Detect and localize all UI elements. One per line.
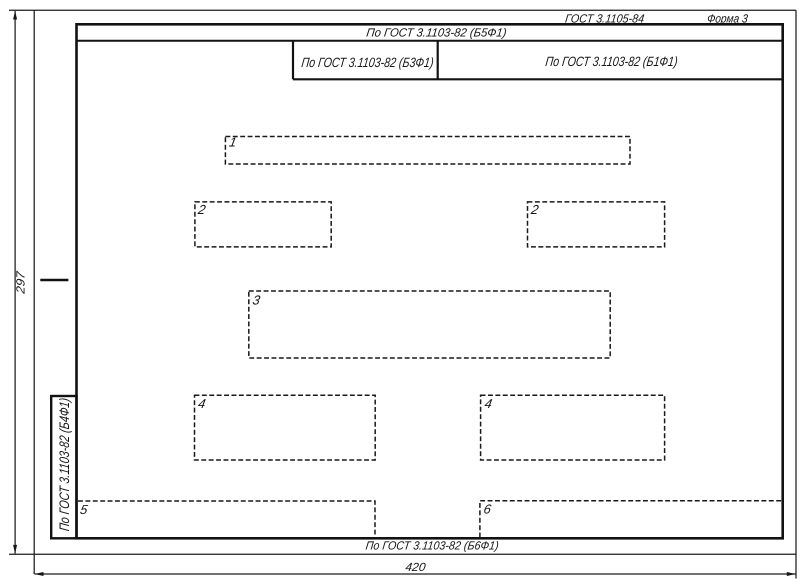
svg-text:По ГОСТ 3.1103-82 (Б5Ф1): По ГОСТ 3.1103-82 (Б5Ф1)	[366, 26, 508, 40]
svg-text:По ГОСТ 3.1103-82 (Б3Ф1): По ГОСТ 3.1103-82 (Б3Ф1)	[301, 55, 435, 70]
svg-text:6: 6	[482, 501, 493, 516]
svg-text:420: 420	[405, 560, 427, 574]
svg-text:По ГОСТ 3.1103-82 (Б4Ф1): По ГОСТ 3.1103-82 (Б4Ф1)	[56, 397, 72, 532]
svg-text:По ГОСТ 3.1103-82 (Б6Ф1): По ГОСТ 3.1103-82 (Б6Ф1)	[365, 539, 500, 553]
svg-text:2: 2	[196, 202, 208, 217]
svg-text:297: 297	[14, 270, 28, 295]
svg-text:По ГОСТ 3.1103-82 (Б1Ф1): По ГОСТ 3.1103-82 (Б1Ф1)	[545, 54, 679, 69]
svg-text:3: 3	[251, 293, 262, 308]
svg-text:4: 4	[197, 396, 207, 411]
svg-text:2: 2	[529, 202, 541, 217]
svg-text:4: 4	[483, 396, 493, 411]
svg-text:Форма 3: Форма 3	[706, 11, 749, 25]
svg-text:1: 1	[228, 135, 238, 150]
svg-text:5: 5	[79, 502, 90, 517]
svg-text:ГОСТ 3.1105-84: ГОСТ 3.1105-84	[564, 11, 645, 25]
